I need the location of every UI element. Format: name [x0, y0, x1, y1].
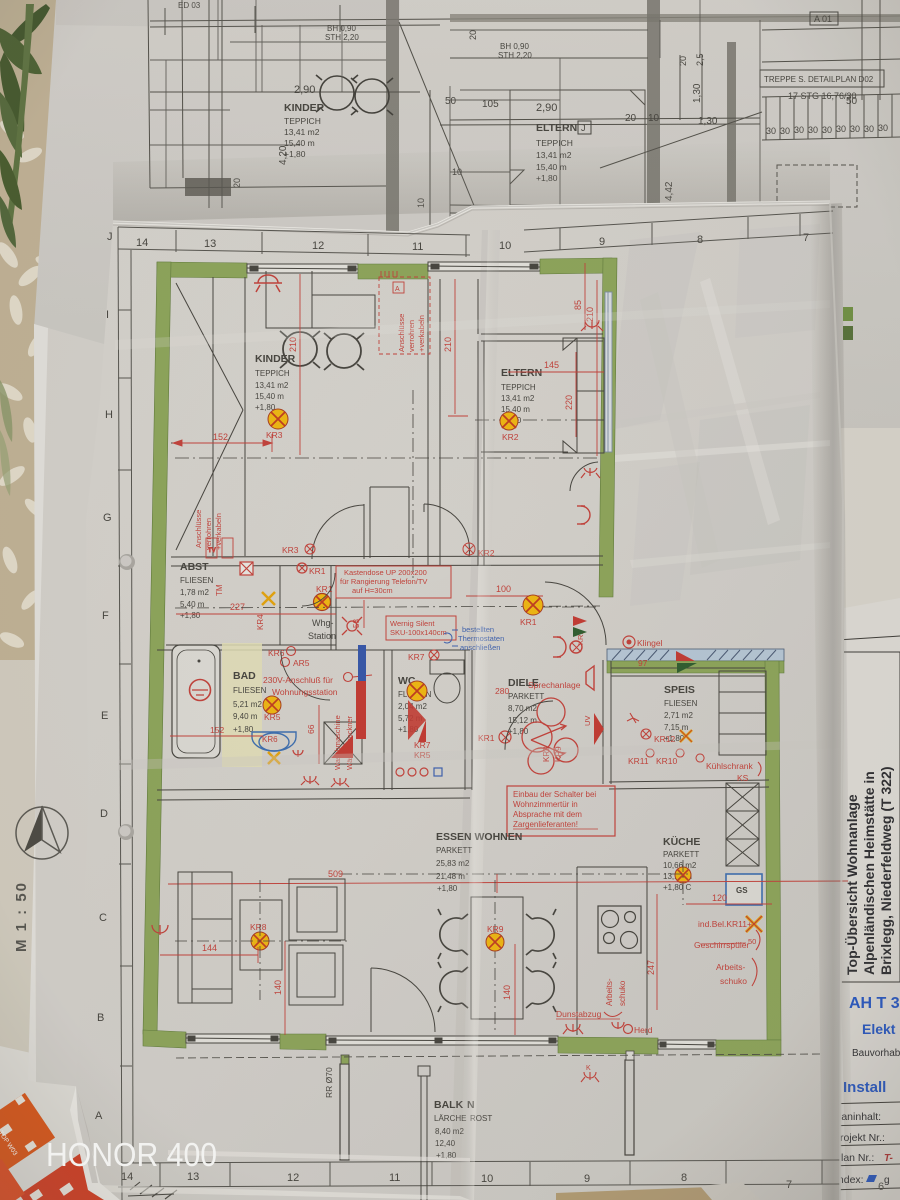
svg-text:HONOR 400: HONOR 400 [46, 1136, 217, 1173]
